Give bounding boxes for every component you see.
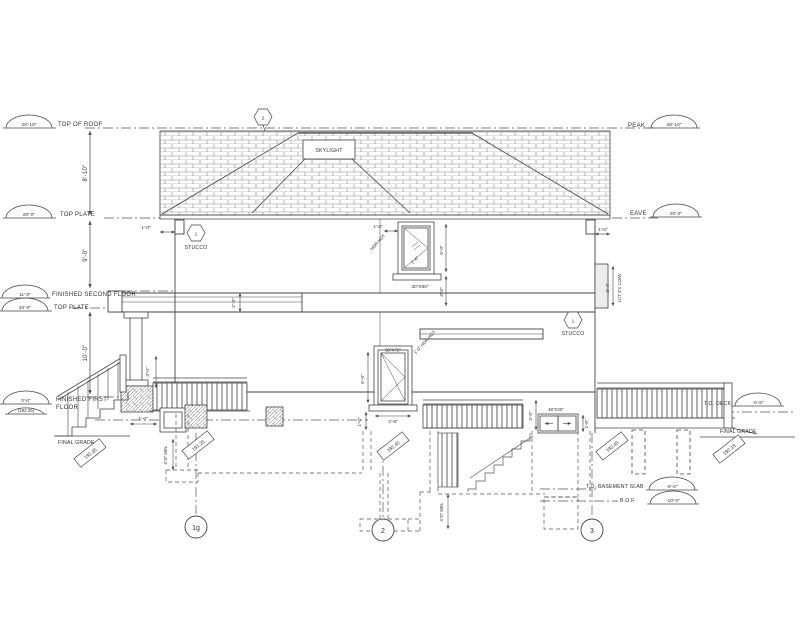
grid-number-2: 2: [381, 528, 385, 535]
dim-eave-left: 1'-0": [141, 225, 151, 231]
dim-roof-storey: 8'-10": [83, 164, 89, 181]
win1-sill-dim: 1'-0": [357, 417, 363, 427]
elev-top-plate-lower: 10'-0": [19, 305, 32, 311]
win2-size-label: 30"X60": [411, 284, 429, 290]
elev-to-deck: -0'-8": [752, 400, 763, 406]
mid-deck-railing: [423, 405, 523, 428]
dim-porch-rail: 3'-0": [145, 367, 151, 377]
stucco-left-label: STUCCO: [184, 245, 207, 251]
stucco-right-label: STUCCO: [561, 331, 584, 337]
label-eave: EAVE: [630, 211, 647, 217]
geodetic-fin-first-floor: (192.25): [18, 408, 35, 413]
frost-depth-left: 4'-0" MIN.: [163, 445, 168, 464]
win1-height-dim: 6'-0": [360, 374, 366, 384]
porch-column-base: [124, 380, 148, 386]
roof: [160, 131, 610, 219]
elev-fin-first-floor: 0'-0": [21, 398, 31, 404]
label-fin-first-floor-1: FINISHED FIRST: [56, 397, 107, 403]
grid-number-3: 3: [590, 528, 594, 535]
elevation-drawing: 8'-10" 9'-0" 10'-0" SKYLIGHT 2: [0, 0, 800, 640]
win1-size-label: 30"X72": [385, 348, 401, 353]
skylight-label: SKYLIGHT: [315, 148, 343, 154]
elev-fin-second-floor: 11'-0": [19, 292, 31, 298]
stucco-right-keynote-number: 1: [572, 319, 575, 325]
dim-porch-beam: 2'-0": [231, 298, 237, 308]
elevation-drawing-sheet: 8'-10" 9'-0" 10'-0" SKYLIGHT 2: [0, 0, 800, 640]
dim-first-storey: 10'-0": [83, 344, 89, 361]
elev-bof: -10'-0": [666, 498, 680, 504]
elev-top-of-roof: 28'-10": [22, 122, 37, 128]
label-bof: B.O.F.: [620, 498, 636, 504]
porch-column-capital: [124, 312, 148, 318]
porch-newel-post: [120, 355, 126, 392]
stucco-left-keynote-number: 1: [195, 232, 198, 238]
label-to-deck: T.O. DECK: [704, 401, 732, 407]
deck-rail-dim: 3'-0": [528, 411, 534, 421]
label-fin-second-floor: FINISHED SECOND FLOOR: [52, 292, 136, 298]
window-well: [438, 433, 458, 487]
frost-depth-center: 4'-0" MIN.: [439, 502, 444, 521]
bsmt-win-height-dim: 1'-8": [584, 419, 589, 428]
sheet-background: [0, 0, 800, 640]
label-top-plate-lower: TOP PLATE: [54, 305, 89, 311]
elev-to-basement-slab: -8'-0": [666, 484, 677, 490]
elev-peak: 28'-10": [667, 122, 682, 128]
grid-number-1: 1g: [192, 525, 200, 532]
elev-top-plate-upper: 20'-0": [23, 212, 36, 218]
label-peak: PEAK: [628, 123, 645, 129]
stone-pier-3: [266, 407, 283, 426]
win2-sill-dim: 3'-0": [439, 287, 445, 297]
label-final-grade-left: FINAL GRADE: [58, 440, 95, 446]
dim-eave-right: 1'-0": [598, 227, 608, 233]
dim-porch-vent: 1'-0": [138, 416, 148, 422]
elev-eave: 20'-0": [670, 211, 683, 217]
label-fin-first-floor-2: FLOOR: [56, 405, 79, 411]
chase-note: LCT 3'X CO/W: [617, 273, 622, 303]
bsmt-win-size-label: 48"X20": [548, 407, 564, 412]
win1-width-dim: 2'-6": [388, 419, 398, 425]
win2-height-dim: 5'-0": [439, 245, 445, 255]
label-final-grade-right: FINAL GRADE: [720, 429, 757, 435]
dim-second-storey: 9'-0": [83, 248, 89, 261]
roof-keynote-number: 2: [262, 116, 265, 122]
win2-hdr-dim: 1'-0": [373, 224, 383, 230]
chase-height-dim: 3'-4": [605, 283, 611, 293]
label-to-basement-slab: T.O. BASEMENT SLAB: [586, 484, 644, 490]
label-top-plate-upper: TOP PLATE: [60, 212, 95, 218]
label-top-of-roof: TOP OF ROOF: [58, 122, 102, 128]
